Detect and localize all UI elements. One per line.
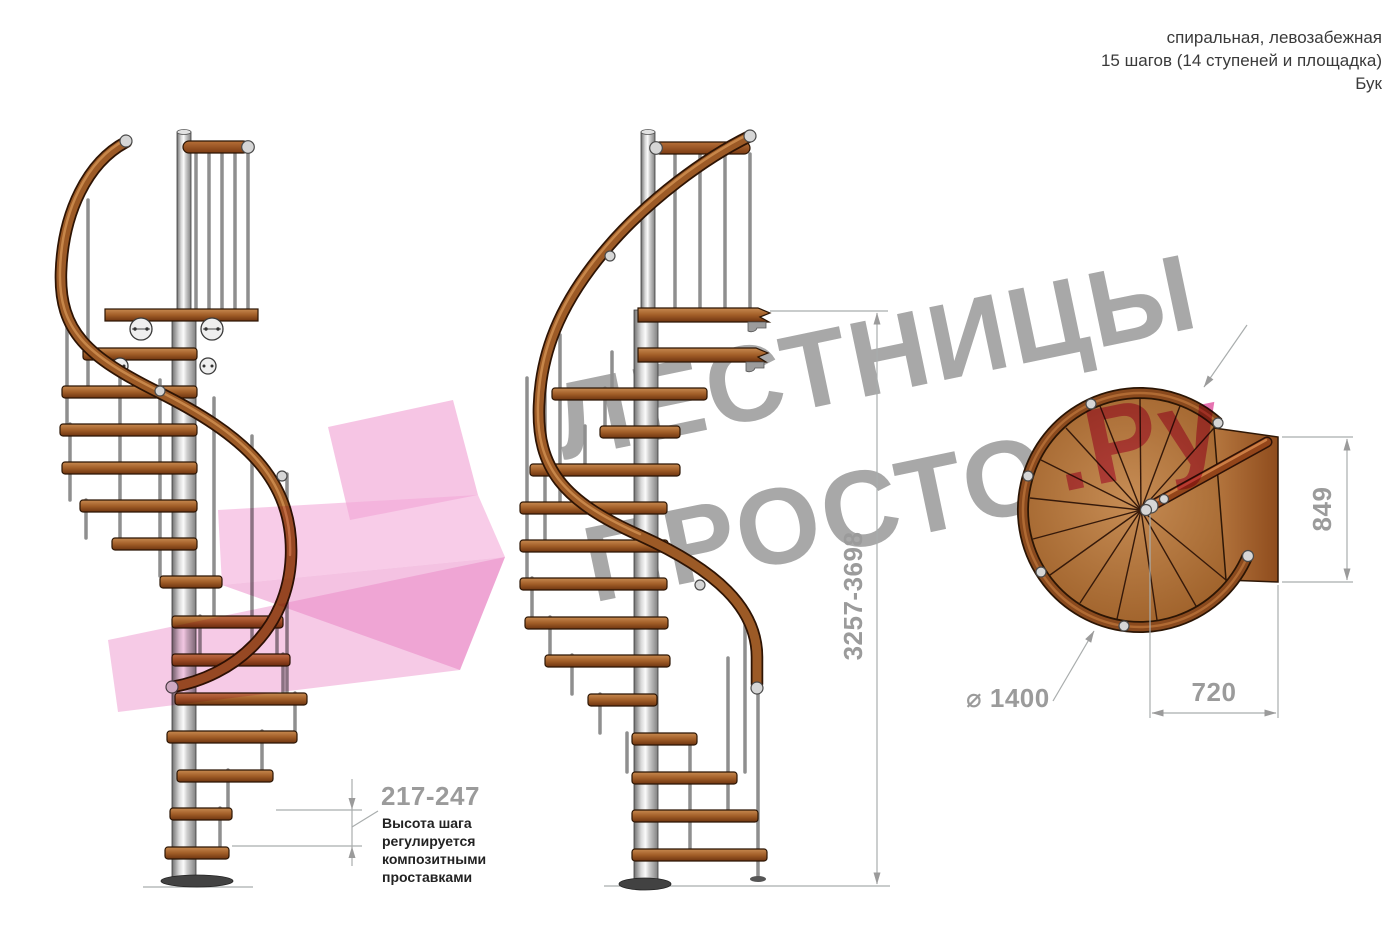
side-view-left [60,130,307,888]
landing-platform [638,308,770,322]
dimension-step-height: 217-247 Высота шага регулируется компози… [232,779,486,885]
dimension-diameter: ⌀ 1400 [966,631,1094,713]
pole-hub [1141,505,1152,516]
title-block: спиральная, левозабежная 15 шагов (14 ст… [1101,26,1382,95]
dimension-849: 849 [1282,437,1353,582]
baluster-foot [750,876,766,882]
first-tread [638,348,768,362]
title-line-type: спиральная, левозабежная [1101,26,1382,49]
base-flange [161,875,233,887]
side-view-middle [520,130,890,891]
handrail-leader-line [1204,325,1247,387]
top-handrail [183,141,249,153]
base-flange [619,878,671,890]
bracket [748,322,766,332]
step-height-note: Высота шага регулируется композитными пр… [382,815,486,885]
landing-platform [105,309,258,321]
title-line-material: Бук [1101,72,1382,95]
total-height-label: 3257-3698 [838,532,868,661]
svg-text:проставками: проставками [382,869,472,885]
svg-text:композитными: композитными [382,851,486,867]
disc-brackets [112,318,223,374]
technical-drawing: 3257-3698 217-247 Высота шага регулирует… [0,0,1400,949]
svg-text:регулируется: регулируется [382,833,475,849]
landing-width-label: 720 [1192,677,1237,707]
svg-text:Высота шага: Высота шага [382,815,472,831]
landing-side-label: 849 [1307,487,1337,532]
bracket [746,362,764,372]
step-height-label: 217-247 [381,781,480,811]
title-line-steps: 15 шагов (14 ступеней и площадка) [1101,49,1382,72]
dimension-total-height: 3257-3698 [770,311,888,884]
diameter-label: ⌀ 1400 [966,683,1050,713]
